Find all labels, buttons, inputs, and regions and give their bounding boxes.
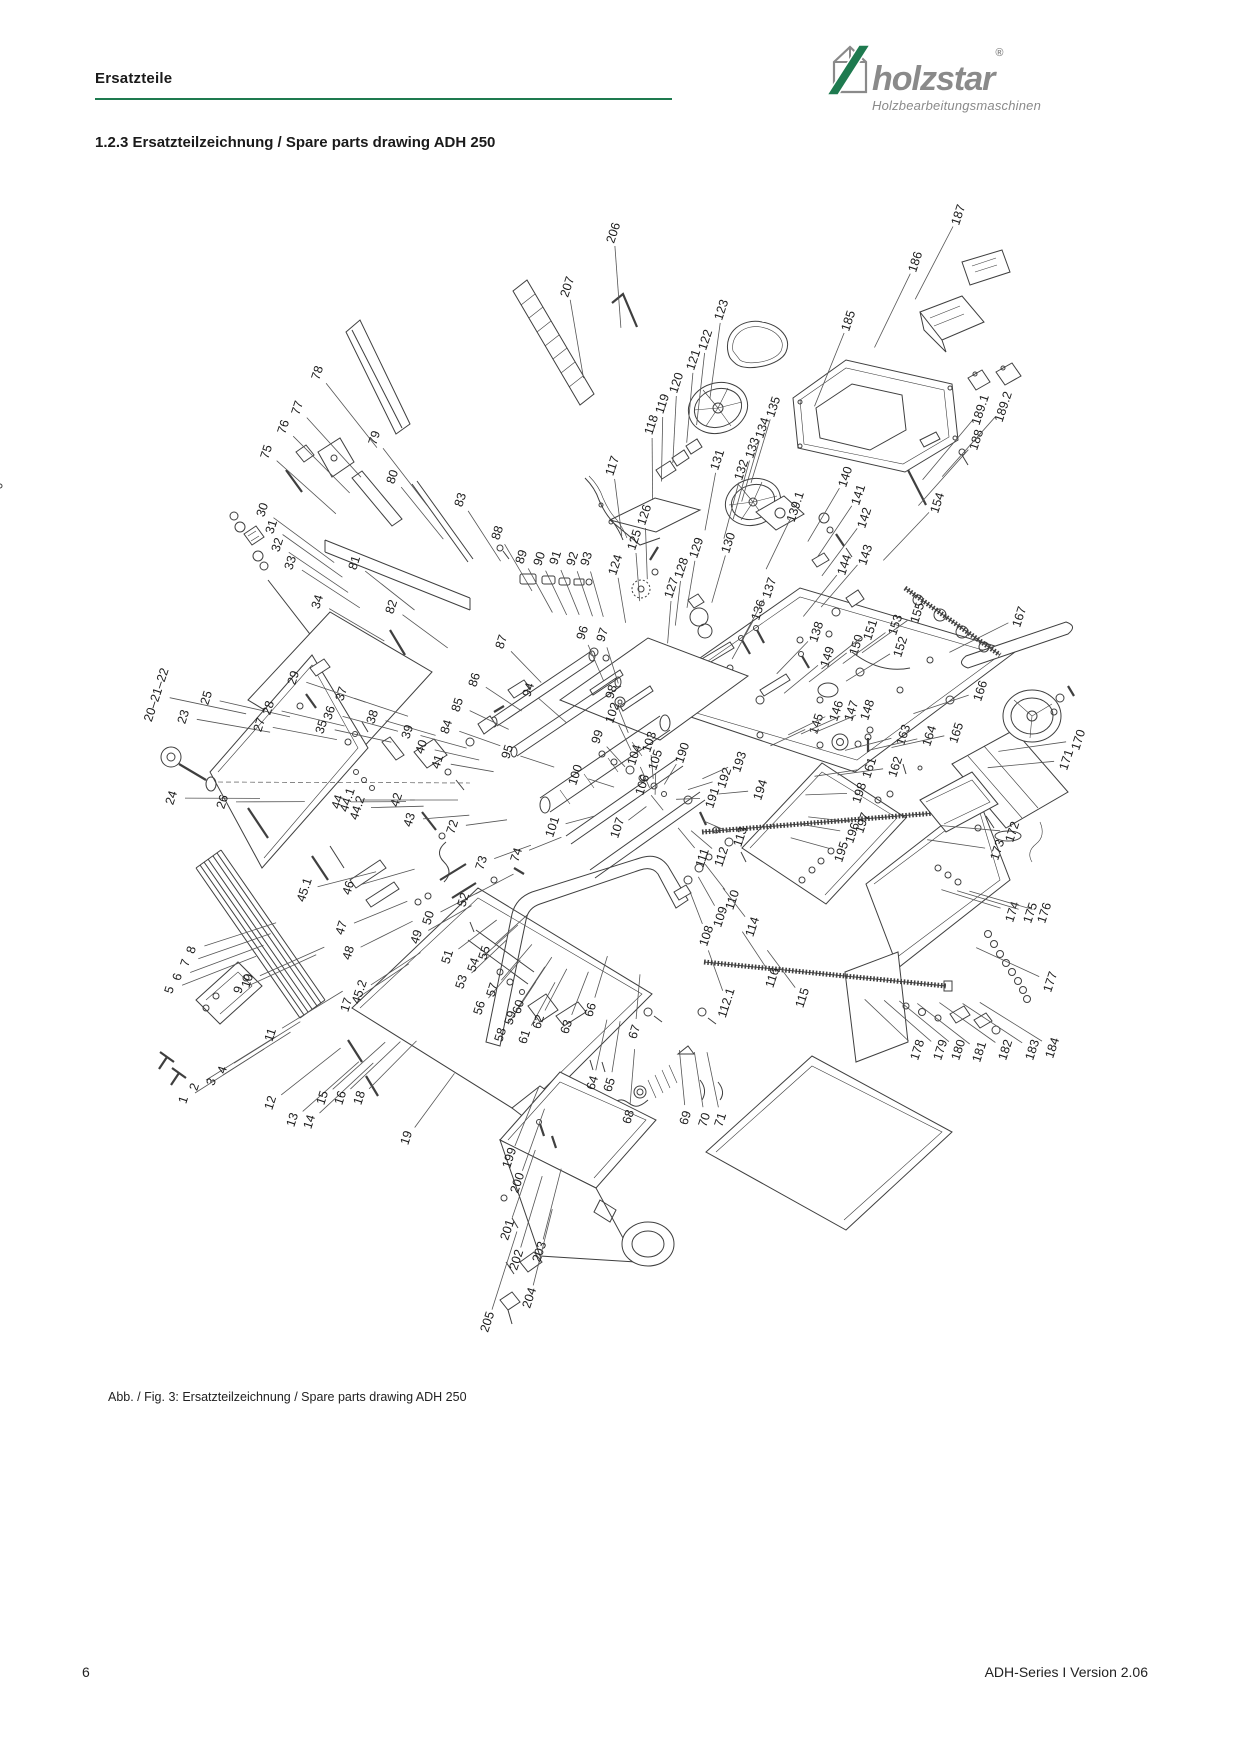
svg-text:207: 207	[557, 275, 577, 299]
part-shape-type-plate	[962, 250, 1010, 285]
svg-text:134: 134	[752, 416, 772, 440]
svg-text:183: 183	[1022, 1038, 1042, 1062]
section-label: Ersatzteile	[95, 70, 172, 87]
svg-text:48: 48	[340, 944, 358, 962]
svg-text:24: 24	[163, 789, 181, 807]
svg-text:125: 125	[624, 528, 644, 552]
part-label-69: 69	[677, 1050, 695, 1127]
svg-text:67: 67	[626, 1023, 644, 1041]
svg-text:202: 202	[506, 1248, 526, 1272]
svg-text:34: 34	[309, 593, 327, 611]
part-shape-shaft-parts	[610, 439, 702, 545]
svg-text:104: 104	[624, 743, 644, 767]
svg-text:143: 143	[855, 543, 875, 567]
part-label-110: 110	[705, 864, 742, 911]
svg-text:164: 164	[919, 724, 939, 748]
part-shape-handwheel	[682, 375, 755, 441]
svg-text:83: 83	[452, 491, 470, 509]
svg-text:162: 162	[885, 755, 905, 779]
part-label-125: 125	[624, 528, 644, 601]
part-label-68: 68	[620, 1049, 638, 1125]
svg-text:78: 78	[309, 364, 327, 382]
brand-logo: holzstar® Holzbearbeitungsmaschinen	[826, 44, 1126, 110]
svg-text:186: 186	[905, 250, 925, 274]
svg-text:1: 1	[176, 1094, 191, 1105]
svg-text:43: 43	[401, 811, 419, 829]
svg-text:88: 88	[489, 524, 507, 542]
part-label-112.1: 112.1	[708, 950, 737, 1019]
svg-text:179: 179	[930, 1038, 950, 1062]
svg-text:23: 23	[175, 708, 193, 726]
svg-text:71: 71	[712, 1111, 730, 1129]
svg-text:135: 135	[763, 395, 783, 419]
part-label-124: 124	[605, 553, 625, 623]
part-label-154: 154	[883, 491, 947, 561]
part-shape-allen-key	[612, 294, 637, 327]
svg-text:142: 142	[854, 506, 874, 530]
svg-text:187: 187	[948, 203, 968, 227]
part-label-187: 187	[915, 203, 968, 300]
svg-text:140: 140	[835, 465, 855, 489]
svg-text:193: 193	[729, 750, 749, 774]
svg-text:16: 16	[332, 1089, 350, 1107]
manual-page: Ersatzteile holzstar® Holzbearbeitungsma…	[0, 0, 1240, 1754]
part-label-47: 47	[333, 901, 408, 936]
svg-text:123: 123	[711, 298, 731, 322]
part-label-113: 113	[703, 821, 750, 849]
svg-text:182: 182	[995, 1038, 1015, 1062]
svg-text:95: 95	[499, 743, 517, 761]
brand-wordmark: holzstar	[872, 60, 994, 98]
svg-text:114: 114	[743, 915, 762, 938]
part-label-72: 72	[444, 818, 507, 836]
part-shape-fence-beam	[286, 438, 473, 655]
part-label-130: 130	[712, 531, 738, 603]
part-label-15: 15	[314, 1042, 386, 1106]
svg-text:72: 72	[444, 818, 462, 836]
part-label-186: 186	[875, 250, 926, 348]
svg-text:12: 12	[262, 1094, 280, 1112]
svg-text:45.1: 45.1	[294, 876, 315, 904]
svg-text:124: 124	[605, 553, 625, 577]
svg-text:106: 106	[632, 773, 652, 797]
part-shape-chain	[0, 476, 627, 540]
part-label-120: 120	[666, 371, 686, 463]
part-label-77: 77	[289, 399, 361, 477]
part-label-190: 190	[664, 741, 692, 785]
svg-text:167: 167	[1009, 605, 1029, 629]
svg-text:171: 171	[1056, 748, 1076, 772]
svg-text:89: 89	[513, 548, 531, 566]
part-label-11: 11	[262, 991, 343, 1043]
svg-text:118: 118	[642, 413, 661, 436]
svg-text:121: 121	[683, 348, 703, 372]
part-label-12: 12	[262, 1048, 341, 1111]
svg-text:82: 82	[383, 598, 401, 616]
part-label-206: 206	[603, 221, 623, 328]
svg-text:188: 188	[966, 428, 986, 452]
svg-text:181: 181	[969, 1040, 989, 1064]
svg-text:25: 25	[198, 689, 216, 707]
svg-text:108: 108	[696, 924, 716, 948]
header-rule	[95, 98, 672, 100]
part-label-18: 18	[351, 1041, 417, 1107]
part-label-191: 191	[676, 786, 722, 810]
svg-text:191: 191	[702, 786, 722, 810]
svg-text:87: 87	[493, 633, 511, 651]
part-shape-knife	[346, 320, 410, 434]
svg-text:30: 30	[254, 501, 272, 519]
footer-page-number: 6	[82, 1664, 90, 1680]
svg-text:2: 2	[187, 1081, 202, 1092]
part-label-177: 177	[976, 948, 1060, 994]
svg-text:185: 185	[838, 309, 858, 333]
part-label-80: 80	[384, 468, 444, 539]
svg-text:75: 75	[258, 443, 276, 461]
svg-text:205: 205	[477, 1310, 497, 1334]
svg-text:170: 170	[1068, 728, 1088, 752]
part-label-192: 192	[688, 766, 734, 790]
svg-text:141: 141	[848, 483, 868, 507]
house-with-green-slash-icon	[826, 44, 872, 96]
registered-mark: ®	[995, 47, 1002, 59]
svg-text:32: 32	[269, 536, 287, 554]
part-shape-chain-loop	[985, 931, 1031, 1003]
spare-parts-exploded-drawing: 1234567891011121314151617181920–21–22232…	[0, 160, 1240, 1370]
svg-text:8: 8	[184, 944, 199, 955]
svg-text:144: 144	[834, 553, 854, 577]
svg-text:194: 194	[750, 778, 770, 802]
svg-text:64: 64	[584, 1074, 602, 1092]
part-label-4: 4	[215, 1022, 301, 1076]
part-label-107: 107	[607, 807, 646, 840]
svg-text:112: 112	[712, 845, 731, 868]
part-label-95: 95	[499, 743, 555, 767]
part-label-106: 106	[632, 773, 663, 811]
svg-text:73: 73	[473, 854, 491, 872]
part-label-48: 48	[340, 921, 413, 961]
svg-text:201: 201	[497, 1218, 517, 1242]
svg-text:204: 204	[519, 1286, 539, 1310]
svg-text:65: 65	[601, 1076, 619, 1094]
svg-text:115: 115	[793, 986, 812, 1009]
svg-text:129: 129	[686, 536, 706, 560]
svg-text:107: 107	[607, 816, 627, 840]
part-label-78: 78	[309, 364, 377, 448]
brand-tagline: Holzbearbeitungsmaschinen	[872, 98, 1126, 113]
svg-text:86: 86	[466, 671, 484, 689]
svg-text:101: 101	[542, 815, 562, 839]
part-label-87: 87	[493, 633, 542, 683]
svg-text:50: 50	[420, 909, 438, 927]
part-label-70: 70	[694, 1052, 713, 1129]
svg-text:94: 94	[520, 681, 538, 699]
svg-text:96: 96	[574, 624, 592, 642]
svg-text:91: 91	[547, 549, 565, 567]
svg-text:117: 117	[603, 454, 622, 477]
page-title: 1.2.3 Ersatzteilzeichnung / Spare parts …	[95, 134, 495, 151]
part-label-131: 131	[705, 448, 727, 531]
part-shape-switch-box	[920, 296, 984, 352]
svg-text:90: 90	[531, 550, 549, 568]
svg-text:70: 70	[696, 1111, 714, 1129]
part-label-205: 205	[477, 1232, 516, 1334]
svg-text:84: 84	[438, 718, 456, 736]
svg-text:155: 155	[907, 601, 927, 625]
svg-text:131: 131	[707, 448, 727, 472]
svg-text:15: 15	[314, 1089, 332, 1107]
svg-text:79: 79	[366, 429, 384, 447]
footer-version: ADH-Series I Version 2.06	[985, 1664, 1148, 1680]
part-label-19: 19	[398, 1073, 455, 1146]
svg-text:5: 5	[162, 984, 177, 995]
svg-text:19: 19	[398, 1129, 416, 1147]
svg-text:128: 128	[671, 556, 691, 580]
svg-text:137: 137	[759, 576, 779, 600]
svg-text:189.2: 189.2	[992, 390, 1015, 424]
svg-text:33: 33	[282, 554, 300, 572]
svg-text:112.1: 112.1	[715, 986, 738, 1019]
part-shape-cover-strip	[845, 952, 908, 1062]
part-label-94: 94	[520, 681, 567, 723]
svg-text:180: 180	[948, 1038, 968, 1062]
part-shape-drive-belt	[727, 321, 787, 367]
part-label-127: 127	[661, 576, 681, 644]
svg-text:77: 77	[289, 399, 307, 417]
svg-text:189.1: 189.1	[969, 393, 992, 427]
svg-text:154: 154	[927, 491, 947, 515]
svg-text:85: 85	[449, 696, 467, 714]
svg-text:127: 127	[661, 576, 681, 600]
svg-text:100: 100	[565, 763, 585, 787]
svg-text:139.1: 139.1	[784, 490, 807, 524]
part-shape-guide-bar	[513, 280, 594, 405]
svg-text:130: 130	[718, 531, 738, 555]
part-label-100: 100	[565, 763, 614, 787]
part-label-118: 118	[642, 413, 661, 500]
part-label-82: 82	[383, 598, 448, 648]
svg-text:99: 99	[589, 728, 607, 746]
svg-text:7: 7	[178, 957, 193, 968]
svg-text:47: 47	[333, 919, 351, 937]
svg-text:177: 177	[1040, 970, 1060, 994]
svg-text:39: 39	[399, 723, 417, 741]
svg-text:69: 69	[677, 1109, 695, 1127]
svg-text:13: 13	[284, 1111, 302, 1129]
svg-text:190: 190	[672, 741, 692, 765]
svg-text:76: 76	[275, 418, 293, 436]
svg-text:178: 178	[907, 1038, 927, 1062]
part-label-20–21–22: 20–21–22	[141, 666, 246, 723]
svg-text:20–21–22: 20–21–22	[141, 666, 172, 723]
svg-text:206: 206	[603, 221, 623, 245]
svg-text:80: 80	[384, 468, 402, 486]
svg-text:14: 14	[301, 1113, 319, 1131]
svg-text:111: 111	[693, 847, 712, 869]
svg-text:97: 97	[594, 626, 612, 644]
part-label-101: 101	[542, 815, 594, 839]
part-label-116: 116	[742, 932, 782, 990]
svg-text:165: 165	[946, 721, 966, 745]
svg-text:93: 93	[578, 550, 596, 568]
svg-text:6: 6	[170, 971, 185, 982]
svg-text:120: 120	[666, 371, 686, 395]
svg-text:81: 81	[346, 554, 364, 572]
svg-text:18: 18	[351, 1089, 369, 1107]
part-label-8: 8	[184, 923, 277, 955]
svg-text:122: 122	[695, 328, 715, 352]
part-shape-bottom-sheet	[706, 1056, 952, 1230]
figure-caption: Abb. / Fig. 3: Ersatzteilzeichnung / Spa…	[108, 1390, 467, 1404]
part-label-74: 74	[508, 837, 562, 863]
svg-text:184: 184	[1042, 1036, 1062, 1060]
part-shape-housing-cover	[793, 360, 958, 472]
machine-drawing-shapes	[0, 250, 1074, 1324]
svg-text:119: 119	[653, 392, 672, 415]
